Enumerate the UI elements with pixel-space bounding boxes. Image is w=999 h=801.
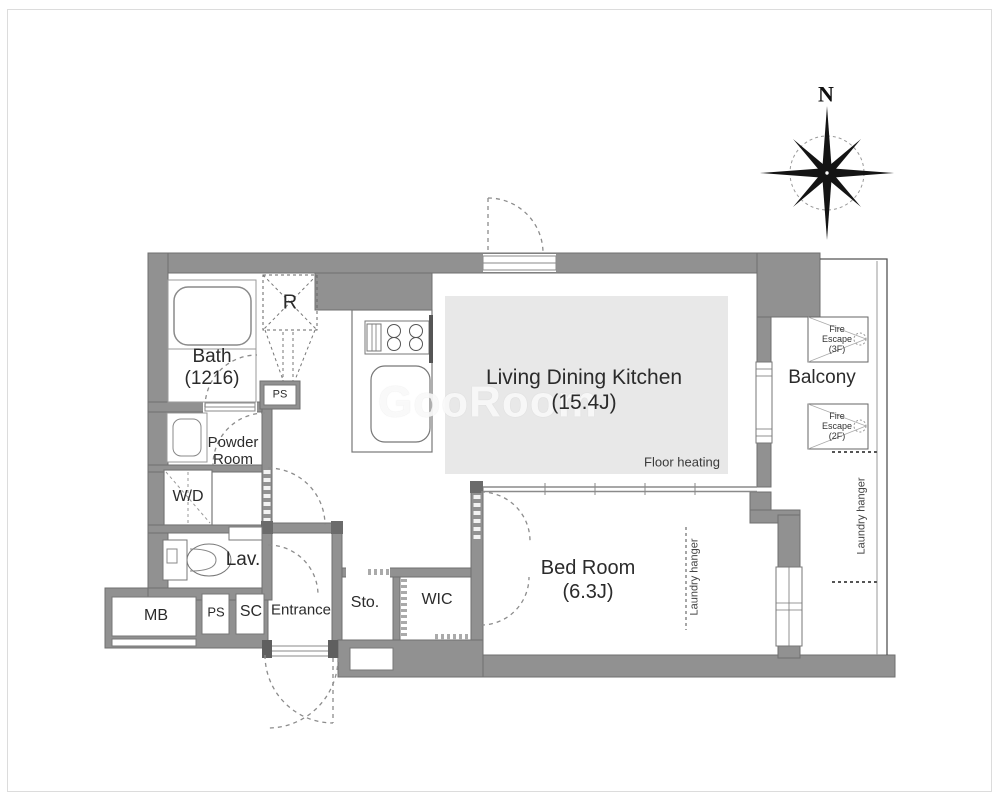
room-label-refrigerator: R	[283, 292, 297, 315]
ldk-bedroom-partition	[261, 481, 757, 534]
compass-icon	[760, 106, 894, 240]
room-label-bedroom: Bed Room (6.3J)	[541, 556, 636, 604]
compass-north-label: N	[818, 81, 834, 106]
label-laundry-hanger-bedroom: Laundry hanger	[689, 538, 702, 615]
room-label-storage: Sto.	[351, 594, 379, 612]
room-label-lavatory: Lav.	[226, 549, 261, 571]
floor-plan-image: GooRoom Bath (1216) R PS Powder Room W/D…	[0, 0, 999, 801]
label-washer-dryer: W/D	[172, 488, 203, 506]
room-label-ldk: Living Dining Kitchen (15.4J)	[486, 365, 682, 415]
label-laundry-hanger-balcony: Laundry hanger	[856, 477, 869, 554]
label-pipe-space-lower: PS	[207, 606, 224, 621]
label-fire-escape-2f: Fire Escape (2F)	[822, 412, 852, 442]
room-label-wic: WIC	[421, 591, 452, 609]
label-floor-heating: Floor heating	[644, 456, 720, 471]
label-pipe-space-upper: PS	[273, 389, 288, 402]
room-label-balcony: Balcony	[788, 367, 856, 389]
room-label-entrance: Entrance	[271, 601, 331, 618]
room-label-bath: Bath (1216)	[185, 346, 240, 390]
label-meter-box: MB	[144, 607, 168, 625]
label-fire-escape-3f: Fire Escape (3F)	[822, 325, 852, 355]
label-shoe-cabinet: SC	[240, 603, 262, 621]
room-label-powder-room: Powder Room	[208, 434, 259, 469]
folding-door-ticks	[368, 572, 471, 638]
powder-sink-icon	[167, 413, 207, 462]
